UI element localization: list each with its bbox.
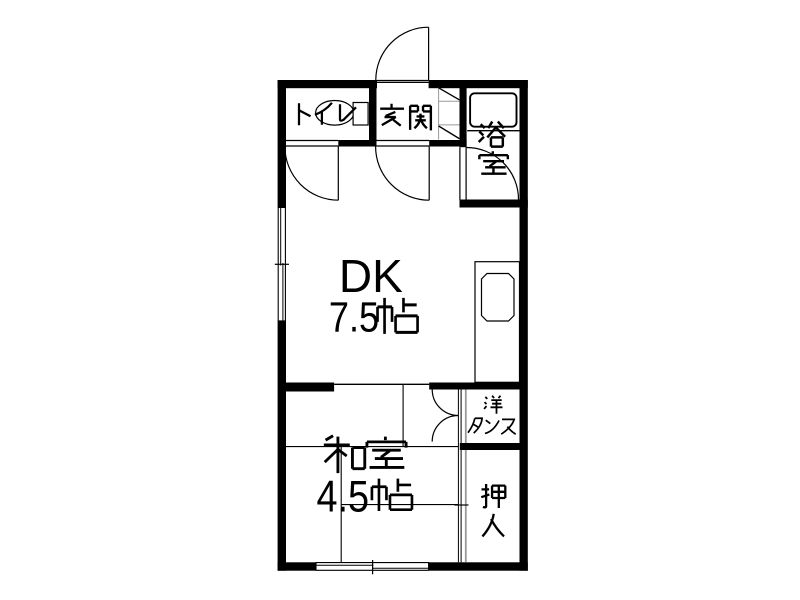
svg-text:7.5: 7.5 [329,293,379,341]
svg-text:4.5: 4.5 [317,472,370,522]
